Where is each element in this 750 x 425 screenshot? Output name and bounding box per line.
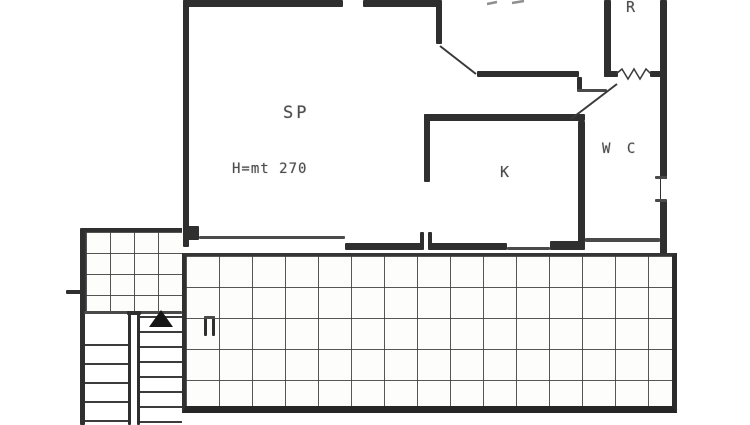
kitchen-north-wall bbox=[424, 114, 585, 121]
hall-south-wall bbox=[477, 71, 579, 77]
stair-flight-left-treads bbox=[85, 344, 128, 425]
terrace-door-jamb-b bbox=[212, 316, 215, 336]
kitchen-south-wall-east bbox=[550, 241, 585, 250]
floor-plan-canvas: SP H=mt 270 K W C R bbox=[0, 0, 750, 425]
terrace-door-jamb-a bbox=[204, 316, 207, 336]
ceiling-height-label: H=mt 270 bbox=[232, 161, 307, 177]
terrace-tile-grid bbox=[182, 253, 677, 413]
sp-east-wall-upper bbox=[436, 0, 442, 44]
room-label-r: R bbox=[626, 0, 635, 16]
stair-west-tick bbox=[66, 290, 82, 294]
kitchen-wc-partition bbox=[578, 121, 585, 242]
kitchen-sw-stub-a bbox=[420, 232, 424, 250]
cutoff-text-fragment bbox=[487, 1, 524, 4]
sp-sw-corner-stub bbox=[183, 226, 199, 240]
room-label-k: K bbox=[500, 163, 509, 181]
terrace-door-jamb-top bbox=[204, 316, 215, 319]
kitchen-west-wall bbox=[424, 114, 430, 182]
sp-west-wall bbox=[183, 0, 189, 247]
sp-south-window bbox=[199, 236, 345, 239]
door-swing-icon bbox=[440, 46, 476, 74]
east-outer-wall bbox=[660, 0, 667, 255]
sp-north-wall-left bbox=[183, 0, 343, 7]
room-label-sp: SP bbox=[283, 103, 309, 123]
stair-flight-right-treads bbox=[140, 316, 182, 425]
stair-landing-tile-grid bbox=[84, 228, 182, 313]
kitchen-south-window bbox=[507, 247, 550, 250]
storage-west-wall bbox=[604, 0, 611, 77]
east-window-tick-top bbox=[655, 176, 667, 179]
stair-stringer-a bbox=[128, 313, 131, 425]
east-window-tick-bottom bbox=[655, 199, 667, 202]
east-wall-window-gap bbox=[661, 179, 667, 200]
kitchen-south-wall-west bbox=[429, 243, 507, 250]
sp-north-wall-right bbox=[363, 0, 439, 7]
hall-niche-sill bbox=[577, 89, 607, 92]
room-label-wc: W C bbox=[602, 141, 639, 157]
storage-south-wall-left bbox=[604, 71, 618, 77]
sp-south-wall-east bbox=[345, 243, 421, 250]
window-zigzag-icon bbox=[616, 69, 651, 79]
wc-south-window bbox=[585, 238, 660, 242]
